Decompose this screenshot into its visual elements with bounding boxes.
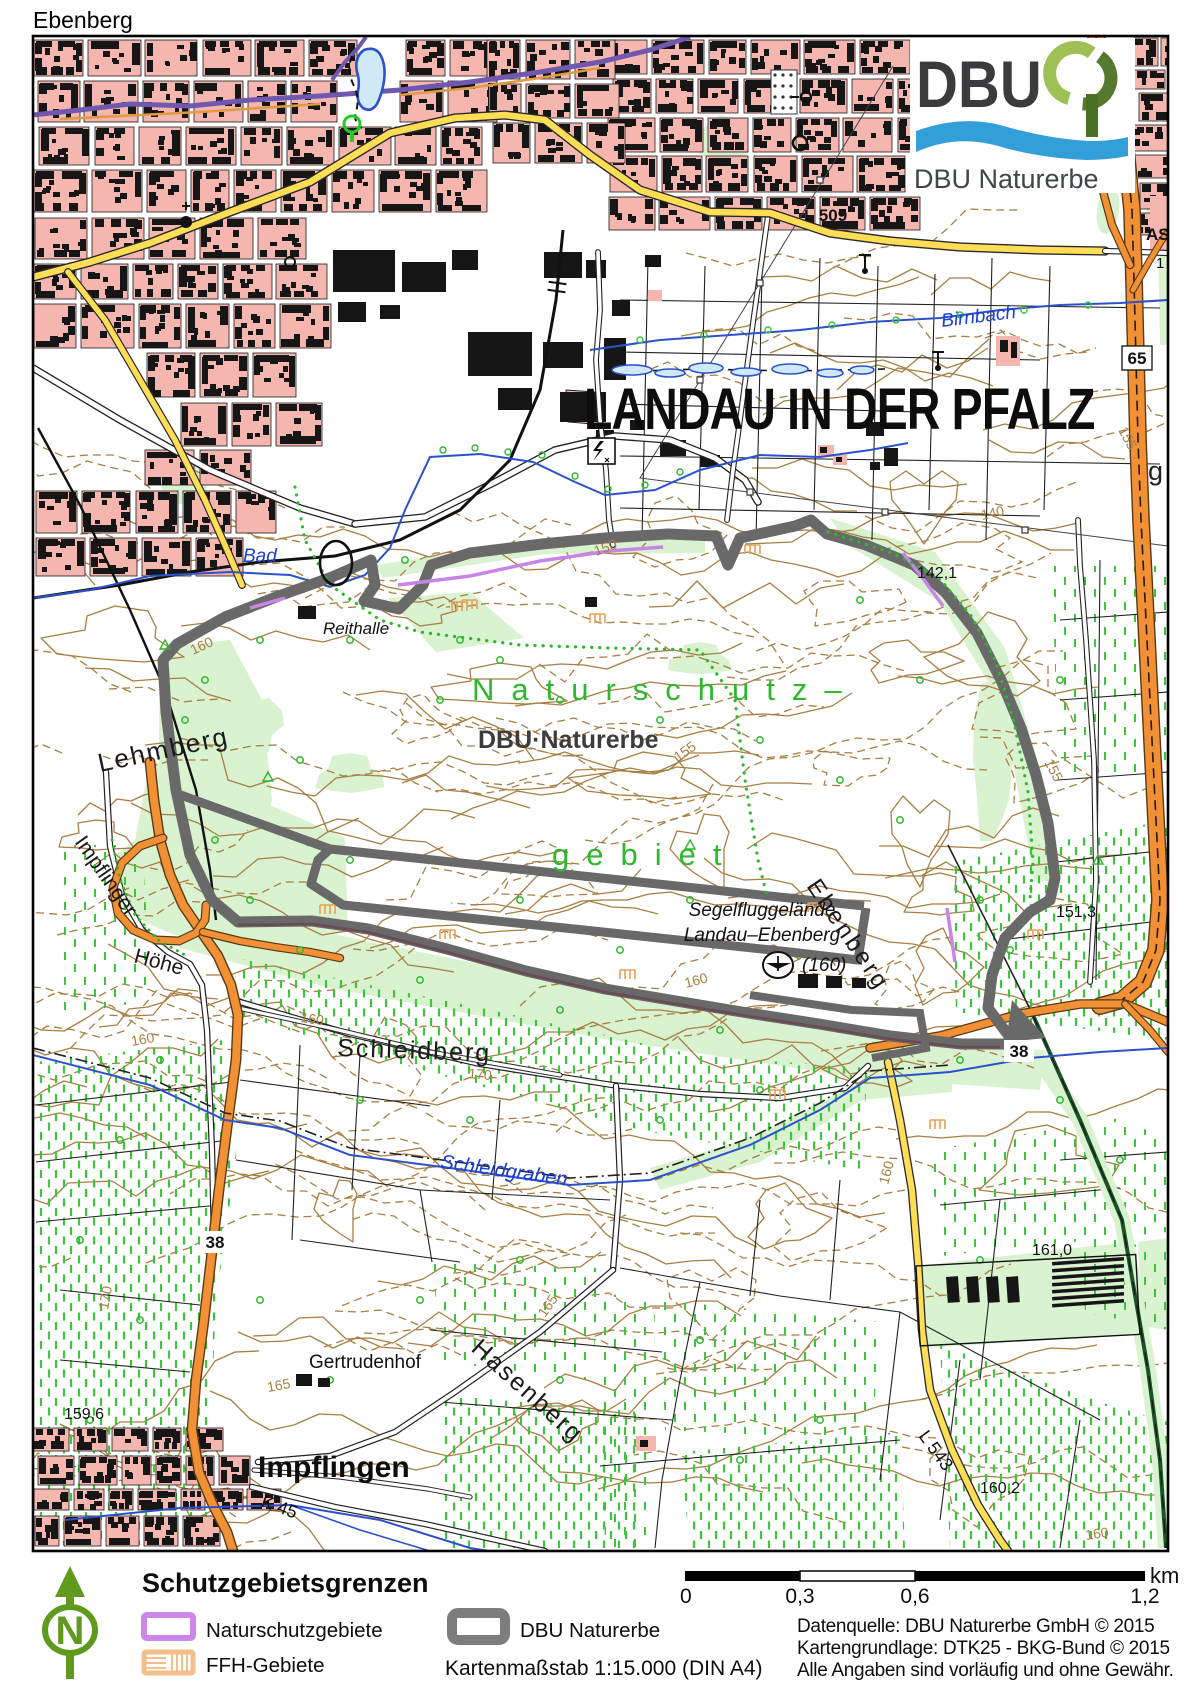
svg-text:g: g xyxy=(1148,456,1163,486)
svg-text:161,0: 161,0 xyxy=(1032,1242,1072,1259)
svg-text:AS: AS xyxy=(1146,225,1170,244)
svg-text:1: 1 xyxy=(1156,255,1164,272)
svg-text:Ebenberg: Ebenberg xyxy=(33,7,133,33)
svg-text:L 509: L 509 xyxy=(804,206,847,225)
svg-text:Schleidberg: Schleidberg xyxy=(337,1034,492,1067)
svg-text:0,6: 0,6 xyxy=(900,1585,929,1608)
svg-text:Naturschutzgebiete: Naturschutzgebiete xyxy=(206,1619,383,1642)
svg-text:Kartengrundlage: DTK25 - BKG-B: Kartengrundlage: DTK25 - BKG-Bund © 2015 xyxy=(797,1638,1170,1659)
svg-text:DBU Naturerbe: DBU Naturerbe xyxy=(520,1619,660,1642)
svg-text:LANDAU IN DER PFALZ: LANDAU IN DER PFALZ xyxy=(584,377,1095,442)
svg-text:159,6: 159,6 xyxy=(64,1406,104,1423)
svg-text:38: 38 xyxy=(1010,1042,1029,1061)
svg-text:0,3: 0,3 xyxy=(785,1585,814,1608)
svg-text:Alle Angaben sind vorläufig un: Alle Angaben sind vorläufig und ohne Gew… xyxy=(797,1660,1174,1681)
svg-text:gebiet: gebiet xyxy=(552,837,738,872)
svg-text:Impflingen: Impflingen xyxy=(258,1451,410,1484)
svg-text:Bad: Bad xyxy=(243,546,278,567)
svg-text:Kartenmaßstab 1:15.000 (DIN: Kartenmaßstab 1:15.000 (DIN A4) xyxy=(445,1657,763,1680)
svg-text:Naturschutz–: Naturschutz– xyxy=(472,672,859,707)
svg-text:Schutzgebietsgrenzen: Schutzgebietsgrenzen xyxy=(142,1568,429,1598)
svg-text:DBU·Naturerbe: DBU·Naturerbe xyxy=(478,726,659,754)
svg-text:142,1: 142,1 xyxy=(917,565,957,582)
svg-text:0: 0 xyxy=(680,1585,692,1608)
svg-text:Gertrudenhof: Gertrudenhof xyxy=(309,1352,422,1373)
svg-text:170: 170 xyxy=(468,1065,493,1083)
svg-text:160,2: 160,2 xyxy=(980,1480,1020,1497)
svg-text:151,3: 151,3 xyxy=(1056,904,1096,921)
svg-text:38: 38 xyxy=(206,1233,225,1252)
svg-text:(160): (160) xyxy=(802,955,846,976)
svg-text:160: 160 xyxy=(1084,1524,1110,1543)
svg-text:FFH-Gebiete: FFH-Gebiete xyxy=(206,1654,324,1677)
svg-text:1,2: 1,2 xyxy=(1130,1585,1159,1608)
svg-text:Reithalle: Reithalle xyxy=(323,619,389,638)
svg-text:160: 160 xyxy=(300,1009,326,1028)
svg-text:65: 65 xyxy=(1128,349,1147,368)
svg-text:N: N xyxy=(56,1609,85,1653)
svg-text:DBU Naturerbe: DBU Naturerbe xyxy=(914,164,1099,194)
svg-text:Datenquelle: DBU Naturerbe Gmb: Datenquelle: DBU Naturerbe GmbH © 2015 xyxy=(797,1616,1154,1637)
svg-text:DBU: DBU xyxy=(916,49,1042,122)
svg-text:Landau–Ebenberg: Landau–Ebenberg xyxy=(684,925,841,946)
